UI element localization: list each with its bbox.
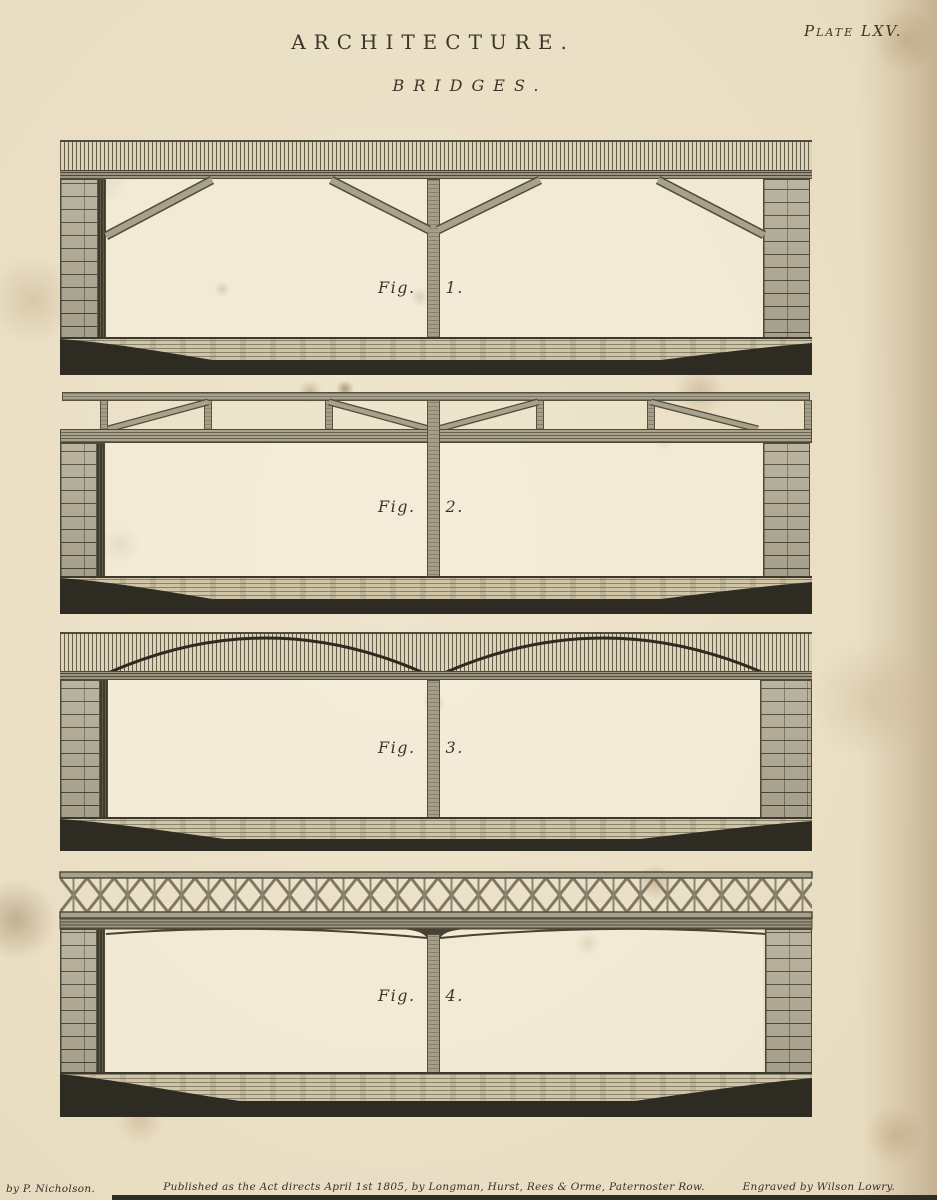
plate-number: Plate LXV. bbox=[804, 22, 903, 40]
diagonal-brace-1 bbox=[108, 402, 208, 429]
figure-label: Fig.1. bbox=[378, 278, 464, 297]
figure-3-arched-deck-bridge: Fig.3. bbox=[60, 632, 812, 849]
lattice-truss-band bbox=[60, 872, 812, 918]
strut-right bbox=[658, 180, 764, 235]
pier-left bbox=[60, 929, 105, 1077]
figure-label: Fig.3. bbox=[378, 738, 464, 757]
river-water bbox=[60, 817, 812, 849]
abutment-shadow-edge bbox=[99, 681, 107, 819]
river-bank-left bbox=[60, 1074, 240, 1117]
river-water bbox=[60, 576, 812, 612]
figure-label-prefix: Fig. bbox=[378, 986, 416, 1005]
abutment-right bbox=[763, 443, 810, 583]
river-ground bbox=[60, 1074, 812, 1117]
deck-soffit-rail bbox=[60, 672, 812, 680]
strut-center-right bbox=[438, 180, 540, 230]
river-bank-left bbox=[60, 339, 230, 375]
figure-label-prefix: Fig. bbox=[378, 497, 416, 516]
soffit-curve-left bbox=[106, 929, 427, 938]
abutment-right bbox=[760, 680, 812, 820]
river-bank-right bbox=[640, 821, 812, 851]
arch-rib-right bbox=[442, 638, 766, 672]
center-pier-post bbox=[427, 400, 440, 580]
diagonal-brace-3 bbox=[438, 402, 538, 429]
river-ground bbox=[60, 819, 812, 851]
figure-label-prefix: Fig. bbox=[378, 738, 416, 757]
river-bank-left bbox=[60, 578, 230, 614]
arch-rib-left bbox=[106, 638, 426, 672]
figure-label-number: 1. bbox=[446, 278, 464, 297]
engraved-plate-page: Plate LXV. ARCHITECTURE. BRIDGES. bbox=[0, 0, 937, 1200]
figure-4-lattice-truss-bridge: Fig.4. bbox=[60, 872, 812, 1115]
scan-edge-artifact bbox=[112, 1195, 937, 1200]
river-water bbox=[60, 337, 812, 373]
figure-label-prefix: Fig. bbox=[378, 278, 416, 297]
figure-label: Fig.2. bbox=[378, 497, 464, 516]
diagonal-brace-2 bbox=[329, 402, 429, 429]
arch-ribs bbox=[60, 634, 812, 672]
engraver-credit: Engraved by Wilson Lowry. bbox=[743, 1181, 895, 1193]
figure-label-number: 3. bbox=[446, 738, 464, 757]
soffit-band bbox=[60, 918, 812, 929]
abutment-left bbox=[60, 443, 105, 583]
abutment-shadow-edge bbox=[96, 444, 104, 582]
figure-label-number: 4. bbox=[446, 986, 464, 1005]
river-bank-right bbox=[635, 1078, 812, 1117]
figure-label: Fig.4. bbox=[378, 986, 464, 1005]
river-bank-right bbox=[638, 582, 812, 614]
pier-right bbox=[765, 929, 812, 1077]
center-pier-post bbox=[427, 934, 440, 1078]
strut-center-left bbox=[331, 180, 429, 230]
river-bank-left bbox=[60, 819, 225, 851]
river-ground bbox=[60, 339, 812, 375]
soffit-curve-right bbox=[440, 929, 766, 938]
diagonal-brace-4 bbox=[651, 402, 758, 429]
page-subtitle: BRIDGES. bbox=[393, 76, 548, 95]
figure-1-strutted-beam-bridge: Fig.1. bbox=[60, 140, 812, 373]
abutment-left bbox=[60, 680, 108, 820]
strut-left bbox=[106, 180, 212, 236]
figure-2-trussed-beam-bridge: Fig.2. bbox=[60, 385, 812, 616]
author-credit: by P. Nicholson. bbox=[6, 1183, 95, 1195]
page-title: ARCHITECTURE. bbox=[291, 30, 575, 54]
pier-shadow-edge bbox=[96, 930, 104, 1076]
river-bank-right bbox=[638, 343, 812, 375]
figure-label-number: 2. bbox=[446, 497, 464, 516]
lattice-top-chord bbox=[60, 872, 812, 878]
publication-line: Published as the Act directs April 1st 1… bbox=[163, 1181, 704, 1193]
river-water bbox=[60, 1072, 812, 1115]
lattice-web bbox=[60, 877, 812, 913]
river-ground bbox=[60, 578, 812, 614]
deck-parapet-band bbox=[60, 632, 812, 672]
